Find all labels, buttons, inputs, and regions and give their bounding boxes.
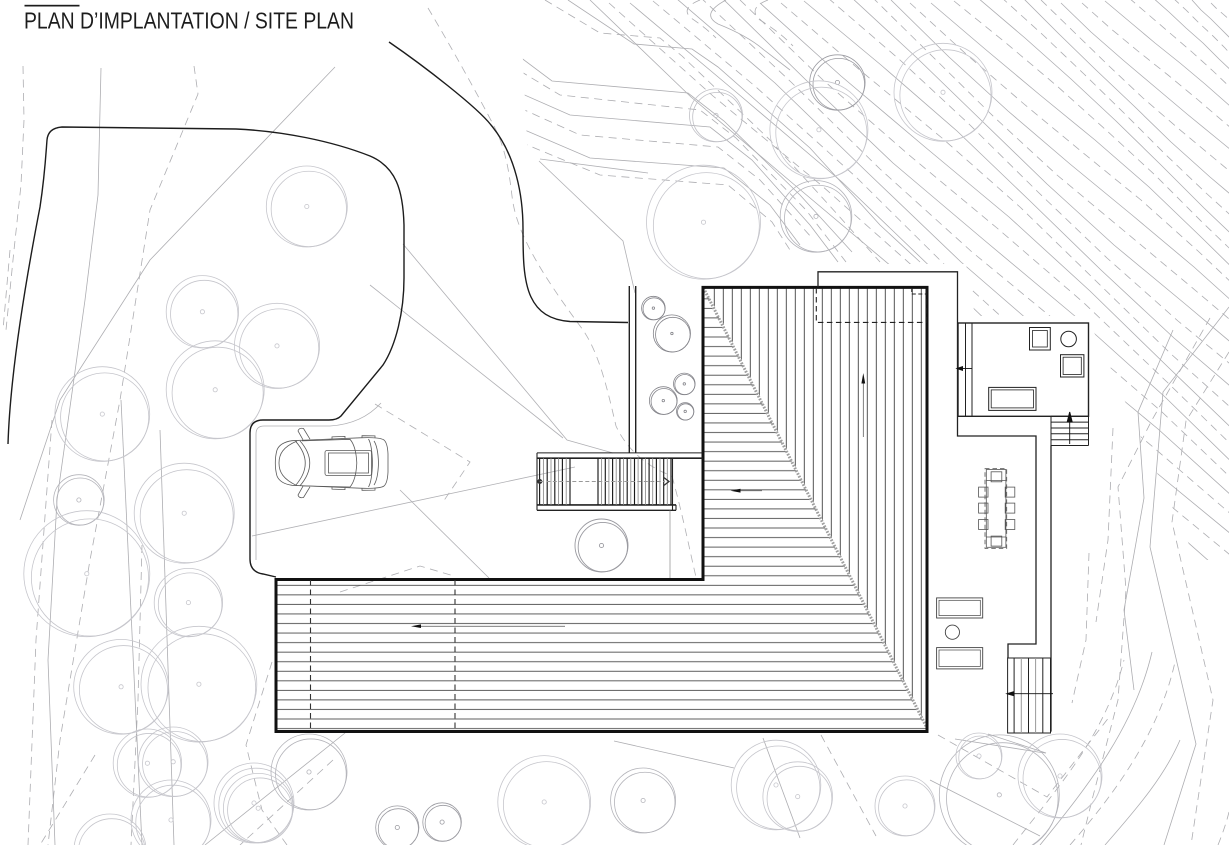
svg-text:PLAN D’IMPLANTATION / SITE PLA: PLAN D’IMPLANTATION / SITE PLAN <box>24 8 354 34</box>
